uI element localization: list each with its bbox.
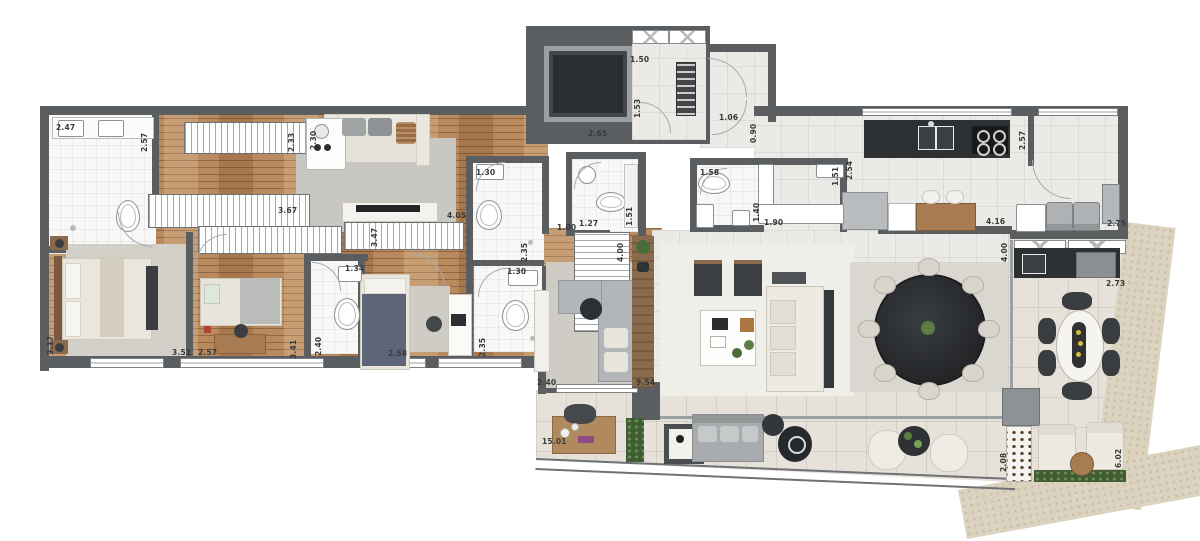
dimension-label: 2.65 (588, 130, 607, 138)
dimension-label: 2.35 (479, 338, 487, 357)
dimension-label: 1.00 (557, 224, 576, 232)
dimension-label: 2.57 (1019, 131, 1027, 150)
dimension-label: 3.51 (172, 349, 191, 357)
dimension-label: 2.35 (521, 243, 529, 262)
dimension-label: 1.34 (345, 265, 364, 273)
dimension-label: 15.01 (542, 438, 567, 446)
dimension-label: 2.30 (310, 131, 318, 150)
dimension-label: 2.57 (141, 133, 149, 152)
dimension-label: 9.54 (636, 379, 655, 387)
dimension-label: 2.54 (846, 161, 854, 180)
dimension-label: 2.33 (288, 133, 296, 152)
dimension-label: 4.00 (617, 243, 625, 262)
floor-plan: 2.472.572.332.303.673.474.051.302.351.30… (0, 0, 1200, 541)
dimension-label: 1.40 (753, 203, 761, 222)
dimension-label: 0.90 (750, 124, 758, 143)
dimension-label: 6.02 (1115, 449, 1123, 468)
dimension-label: 1.58 (700, 169, 719, 177)
dimension-label: 1.50 (630, 56, 649, 64)
dimension-label: 3.17 (47, 336, 55, 355)
dimension-label: 4.05 (447, 212, 466, 220)
dimension-label: 2.58 (388, 350, 407, 358)
dimension-label: 2.73 (1106, 280, 1125, 288)
dimension-label: 2.47 (56, 124, 75, 132)
dimension-label: 1.51 (832, 167, 840, 186)
dimension-label: 1.53 (634, 99, 642, 118)
dimension-label: 4.16 (986, 218, 1005, 226)
dimension-label: 3.41 (290, 340, 298, 359)
dimension-label: 2.75 (1107, 220, 1126, 228)
dimension-labels: 2.472.572.332.303.673.474.051.302.351.30… (0, 0, 1200, 541)
dimension-label: 2.40 (537, 379, 556, 387)
dimension-label: 2.08 (1000, 453, 1008, 472)
dimension-label: 3.47 (371, 228, 379, 247)
dimension-label: 1.27 (579, 220, 598, 228)
dimension-label: 2.40 (315, 337, 323, 356)
dimension-label: 1.90 (764, 219, 783, 227)
dimension-label: 1.30 (476, 169, 495, 177)
dimension-label: 2.57 (198, 349, 217, 357)
dimension-label: 1.51 (626, 207, 634, 226)
dimension-label: 3.67 (278, 207, 297, 215)
dimension-label: 4.00 (1001, 243, 1009, 262)
dimension-label: 1.06 (719, 114, 738, 122)
dimension-label: 1.30 (507, 268, 526, 276)
